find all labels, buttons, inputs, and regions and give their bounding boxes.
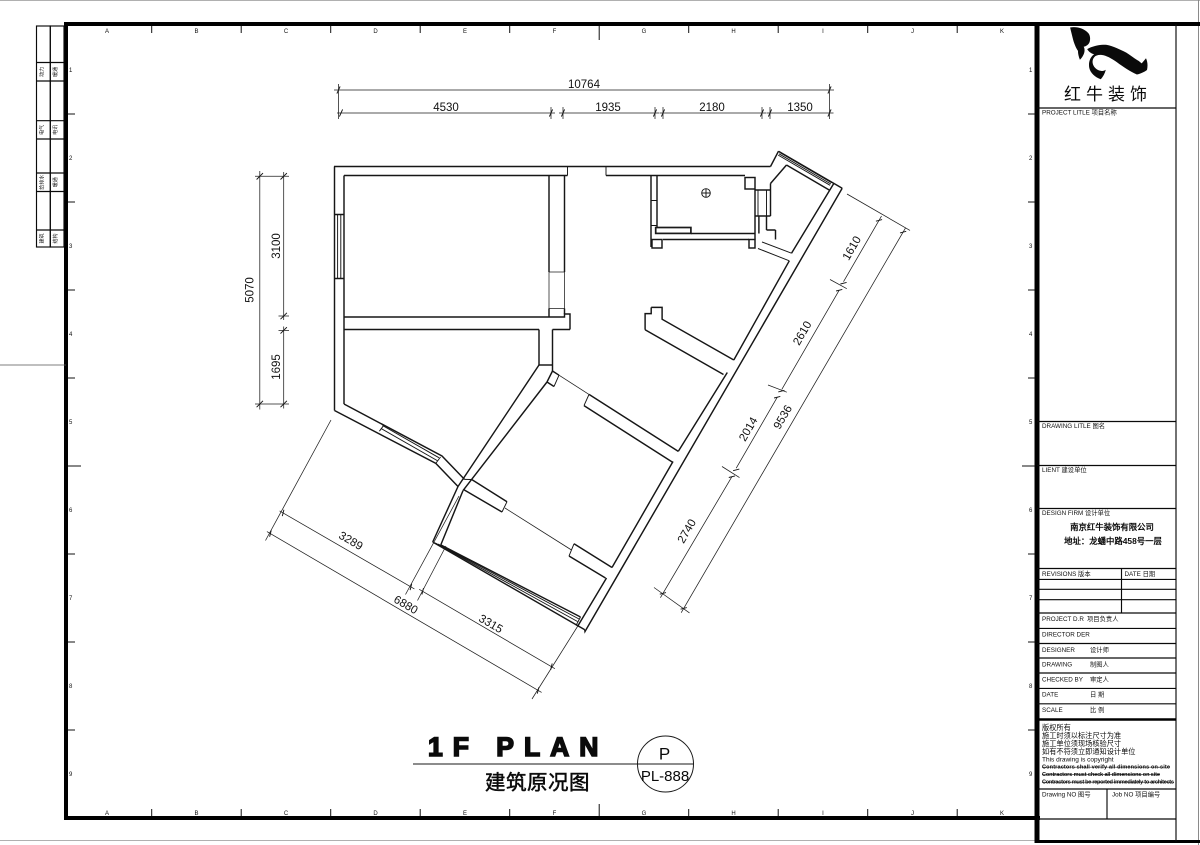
svg-text:D: D xyxy=(373,811,378,817)
svg-text:B: B xyxy=(194,29,198,35)
svg-text:1935: 1935 xyxy=(595,102,621,114)
svg-text:G: G xyxy=(642,811,647,817)
svg-text:10764: 10764 xyxy=(568,79,601,91)
svg-text:3100: 3100 xyxy=(271,233,283,259)
svg-text:设计师: 设计师 xyxy=(1090,645,1109,654)
svg-text:2180: 2180 xyxy=(699,102,725,114)
svg-text:4530: 4530 xyxy=(433,102,459,114)
svg-text:Contractors shall verify all d: Contractors shall verify all dimensions … xyxy=(1042,765,1170,771)
svg-text:CHECKED BY: CHECKED BY xyxy=(1042,677,1084,684)
svg-text:给排水: 给排水 xyxy=(39,175,46,190)
svg-text:地址：龙蟠中路458号一层: 地址：龙蟠中路458号一层 xyxy=(1064,536,1162,546)
svg-text:南京红牛装饰有限公司: 南京红牛装饰有限公司 xyxy=(1070,522,1154,532)
svg-text:Contractors must be reported i: Contractors must be reported immediately… xyxy=(1042,780,1174,786)
svg-text:动力: 动力 xyxy=(39,67,46,77)
svg-text:DRAWING LITLE 图名: DRAWING LITLE 图名 xyxy=(1042,421,1105,430)
svg-text:DESIGN FIRM 设计单位: DESIGN FIRM 设计单位 xyxy=(1042,508,1111,517)
svg-text:电气: 电气 xyxy=(39,125,46,135)
svg-text:LIENT 建设单位: LIENT 建设单位 xyxy=(1042,465,1087,474)
svg-text:暖通: 暖通 xyxy=(52,67,59,77)
svg-text:J: J xyxy=(911,29,914,35)
svg-text:PL-888: PL-888 xyxy=(641,768,689,785)
svg-text:1350: 1350 xyxy=(787,102,813,114)
svg-text:SCALE: SCALE xyxy=(1042,707,1063,714)
svg-text:F: F xyxy=(553,811,557,817)
svg-text:DRAWING: DRAWING xyxy=(1042,662,1072,669)
svg-text:A: A xyxy=(105,811,109,817)
svg-text:K: K xyxy=(1000,29,1004,35)
svg-text:DATE 日期: DATE 日期 xyxy=(1125,570,1156,578)
svg-text:Drawing NO 图号: Drawing NO 图号 xyxy=(1042,791,1091,799)
svg-text:暖通: 暖通 xyxy=(52,177,59,187)
svg-text:PROJECT LITLE 项目名称: PROJECT LITLE 项目名称 xyxy=(1042,108,1117,117)
svg-text:1F PLAN: 1F PLAN xyxy=(428,732,608,762)
svg-text:H: H xyxy=(731,811,735,817)
svg-text:REVISIONS 版本: REVISIONS 版本 xyxy=(1042,569,1091,578)
svg-text:比 例: 比 例 xyxy=(1090,705,1104,714)
svg-text:E: E xyxy=(463,811,467,817)
svg-text:结构: 结构 xyxy=(52,233,59,243)
svg-text:H: H xyxy=(731,29,735,35)
svg-text:Job NO 项目编号: Job NO 项目编号 xyxy=(1112,790,1160,799)
svg-text:PROJECT D.R: PROJECT D.R xyxy=(1042,616,1084,623)
svg-text:E: E xyxy=(463,29,467,35)
svg-text:DIRECTOR DER: DIRECTOR DER xyxy=(1042,632,1090,639)
svg-text:P: P xyxy=(659,745,670,764)
svg-text:C: C xyxy=(284,29,289,35)
svg-text:1695: 1695 xyxy=(271,354,283,380)
svg-text:Contractors must check all dim: Contractors must check all dimensions on… xyxy=(1042,772,1160,778)
svg-text:A: A xyxy=(105,29,109,35)
svg-text:制图人: 制图人 xyxy=(1090,660,1110,669)
svg-text:J: J xyxy=(911,811,914,817)
svg-text:审定人: 审定人 xyxy=(1090,675,1110,684)
svg-text:日 期: 日 期 xyxy=(1090,691,1104,699)
svg-text:电讯: 电讯 xyxy=(52,125,59,135)
svg-text:红牛装饰: 红牛装饰 xyxy=(1064,85,1152,104)
svg-text:K: K xyxy=(1000,811,1004,817)
svg-text:如有不符须立即通知设计单位: 如有不符须立即通知设计单位 xyxy=(1042,747,1135,756)
svg-text:This drawing is copyright: This drawing is copyright xyxy=(1042,757,1114,764)
svg-text:F: F xyxy=(553,29,557,35)
svg-text:D: D xyxy=(373,29,378,35)
svg-text:建筑: 建筑 xyxy=(39,233,46,243)
svg-text:5070: 5070 xyxy=(245,277,257,303)
svg-text:B: B xyxy=(194,811,198,817)
svg-text:DATE: DATE xyxy=(1042,692,1058,699)
svg-text:建筑原况图: 建筑原况图 xyxy=(485,772,590,795)
svg-text:DESIGNER: DESIGNER xyxy=(1042,647,1075,654)
svg-text:项目负责人: 项目负责人 xyxy=(1087,614,1119,623)
svg-text:C: C xyxy=(284,811,289,817)
svg-text:G: G xyxy=(642,29,647,35)
